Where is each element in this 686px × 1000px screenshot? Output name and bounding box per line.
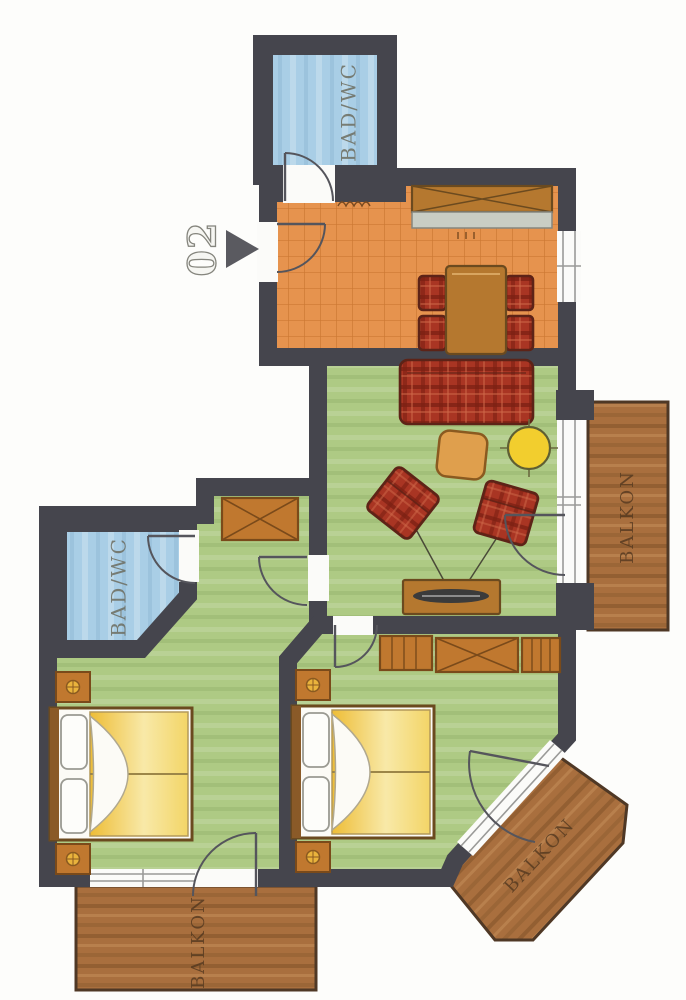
bathroom-top-floor <box>263 45 387 175</box>
bedroom-left-balcony-door-gap <box>195 869 258 887</box>
floor-plan-svg: BALKON BALKON BALKON <box>0 0 686 1000</box>
tv-sideboard <box>403 580 500 614</box>
unit-marker: 02 <box>180 222 260 277</box>
ottoman <box>436 430 489 481</box>
living-balcony-window-door <box>557 420 581 583</box>
balcony-right-label: BALKON <box>617 470 638 564</box>
balcony-bottom-left: BALKON <box>76 886 316 990</box>
bedroom-left-window <box>90 869 195 887</box>
bathroom-top-label: BAD/WC <box>337 62 361 162</box>
entrance-door-gap <box>257 222 278 282</box>
dining-chair <box>419 316 446 350</box>
entrance-arrow-icon <box>226 230 259 268</box>
dining-chair <box>419 276 446 310</box>
double-bed-left <box>50 708 192 840</box>
wall-cap <box>556 583 594 630</box>
corridor-door-gap <box>308 555 329 601</box>
wardrobe-row <box>380 636 560 672</box>
nightstand <box>56 672 90 702</box>
sofa <box>400 360 533 424</box>
bathroom-left-label: BAD/WC <box>107 537 131 637</box>
dining-table <box>446 266 506 354</box>
floor-plan: BALKON BALKON BALKON <box>0 0 686 1000</box>
bathroom-top-door-gap <box>283 165 335 203</box>
balcony-right: BALKON <box>588 402 668 630</box>
nightstand <box>296 842 330 872</box>
nightstand <box>296 670 330 700</box>
dining-set <box>419 266 533 354</box>
kitchen-window <box>557 231 581 302</box>
dining-chair <box>506 276 533 310</box>
bathroom-left-door-gap <box>179 530 199 582</box>
unit-number: 02 <box>180 222 225 277</box>
bedroom-right-door-gap <box>333 616 373 635</box>
wardrobe-corridor <box>222 498 298 540</box>
double-bed-right <box>292 706 434 838</box>
wall-cap <box>556 390 594 420</box>
dining-chair <box>506 316 533 350</box>
balcony-bottom-label: BALKON <box>188 895 209 989</box>
nightstand <box>56 844 90 874</box>
